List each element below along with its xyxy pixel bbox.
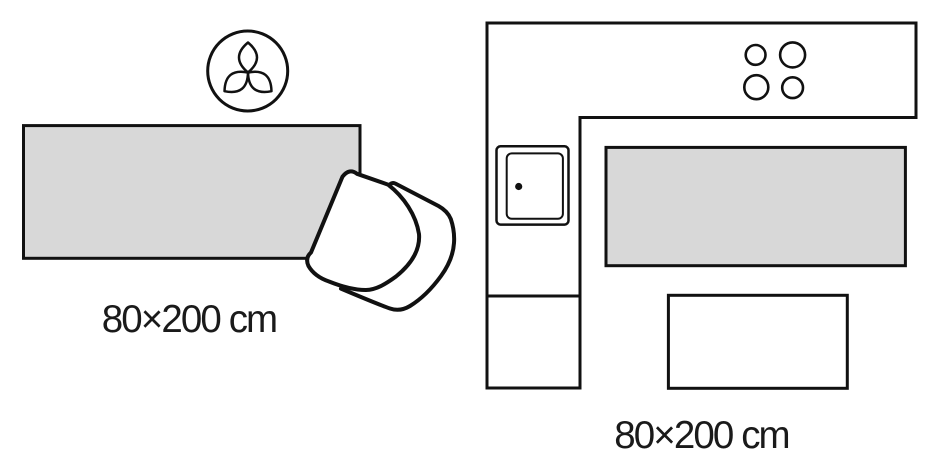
svg-text:80×200 cm: 80×200 cm <box>102 298 276 341</box>
svg-text:80×200 cm: 80×200 cm <box>614 414 788 457</box>
